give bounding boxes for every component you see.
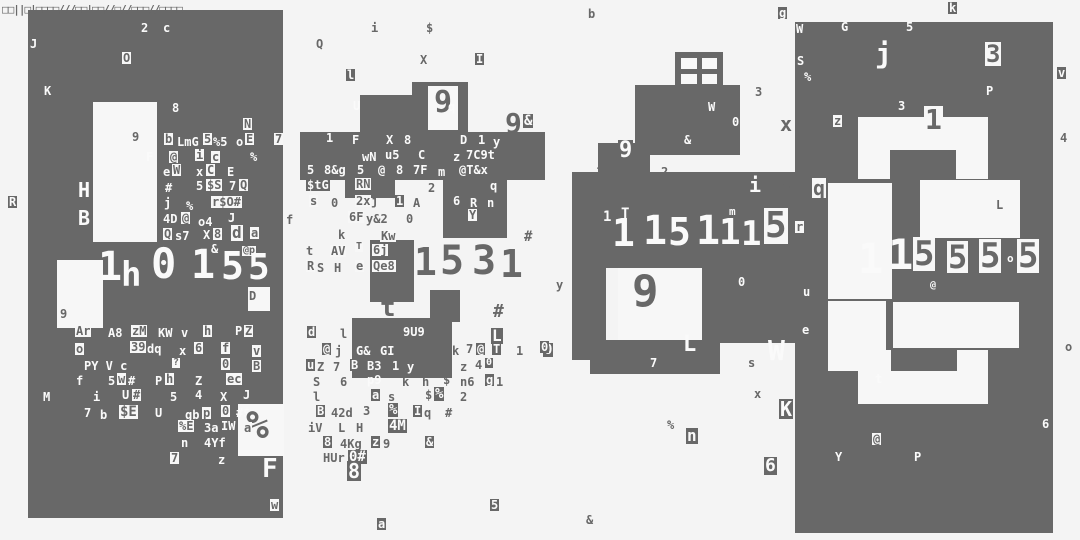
glyph: o — [236, 136, 243, 148]
glyph: w — [117, 373, 126, 385]
glyph: 5 — [203, 133, 212, 145]
glyph: 3 — [755, 86, 762, 98]
glyph: a — [250, 227, 259, 239]
glyph: o — [1065, 341, 1072, 353]
glyph: P — [155, 375, 162, 387]
glyph: W — [708, 101, 715, 113]
glyph: X — [386, 134, 393, 146]
glyph: W — [796, 23, 803, 35]
glyph: 0 — [731, 116, 740, 128]
glyph: k — [338, 229, 345, 241]
glyph: 0 — [151, 243, 176, 285]
glyph: $tG — [306, 179, 330, 191]
glyph: 1 — [98, 247, 122, 287]
glyph: 9 — [383, 438, 390, 450]
glyph: n — [487, 197, 494, 209]
glyph: 1 — [596, 166, 603, 178]
glyph: j — [164, 197, 171, 209]
glyph: @ — [377, 164, 386, 176]
glyph: r$O# — [211, 196, 242, 208]
glyph: wN — [362, 151, 376, 163]
glyph: @ — [930, 281, 936, 291]
glyph: y — [556, 279, 563, 291]
glyph: PY V c — [84, 360, 127, 372]
glyph: & — [425, 436, 434, 448]
glyph: AV — [330, 245, 346, 257]
glyph: 1 — [719, 215, 741, 251]
glyph: l — [346, 69, 355, 81]
glyph: 5 — [913, 237, 935, 271]
glyph: F — [146, 151, 153, 163]
glyph: b — [164, 133, 173, 145]
glyph: 4 — [308, 149, 315, 161]
glyph: E — [227, 166, 234, 178]
glyph: 2 — [428, 182, 435, 194]
gray-block — [890, 150, 956, 179]
glyph: 2 — [661, 166, 668, 178]
glyph: LmG — [177, 136, 199, 148]
glyph: x — [179, 345, 186, 357]
glyph: 3 — [363, 405, 370, 417]
glyph: q — [424, 407, 431, 419]
glyph: d — [231, 225, 243, 241]
glyph: T — [355, 242, 363, 252]
glyph: 2x — [355, 195, 371, 207]
glyph: 7F — [412, 164, 428, 176]
glyph: H — [356, 422, 363, 434]
glyph: 3 — [898, 100, 905, 112]
glyph: j — [875, 40, 892, 68]
glyph: v — [1057, 67, 1066, 79]
glyph: H — [334, 262, 341, 274]
glyph: 9 — [632, 270, 659, 314]
glyph: K — [44, 85, 51, 97]
glyph: 0 — [485, 358, 493, 368]
glyph: D — [460, 134, 467, 146]
glyph: e — [163, 166, 170, 178]
glyph: k — [948, 2, 957, 14]
glyph: 0 — [331, 197, 338, 209]
glyph: b — [588, 8, 595, 20]
glyph: 6j — [372, 244, 388, 256]
glyph: IW — [221, 420, 235, 432]
glyph: g — [778, 7, 787, 19]
glyph: R — [306, 260, 315, 272]
glyph: %E — [178, 420, 194, 432]
glyph: 9U9 — [403, 326, 425, 338]
glyph-noise-canvas: □□||□|□□□□///□□|□□//□//□□□//□□□□ 2cJOK8R… — [0, 0, 1080, 540]
glyph: 5 — [440, 241, 464, 281]
glyph: c — [163, 22, 170, 34]
glyph: C — [206, 164, 215, 176]
glyph: 6 — [194, 342, 203, 354]
glyph: 1 — [500, 245, 523, 283]
glyph: $ — [425, 389, 432, 401]
glyph: 8 — [213, 228, 222, 240]
glyph: P — [986, 85, 993, 97]
glyph: a — [371, 389, 380, 401]
glyph: 7 — [170, 452, 179, 464]
glyph: j — [371, 195, 378, 207]
glyph: 5 — [668, 213, 691, 251]
glyph: 6 — [452, 195, 461, 207]
glyph: # — [128, 375, 135, 387]
glyph: 1 — [496, 376, 503, 388]
glyph: 6 — [340, 376, 347, 388]
glyph: 0 — [540, 341, 549, 353]
glyph: C — [418, 149, 425, 161]
glyph: 5 — [306, 164, 315, 176]
glyph: % — [434, 387, 444, 401]
glyph: P — [914, 451, 921, 463]
glyph: I — [475, 53, 484, 65]
glyph: $ — [426, 22, 433, 34]
glyph: S — [797, 55, 804, 67]
glyph: 5 — [356, 164, 365, 176]
glyph: 7 — [650, 357, 657, 369]
glyph: L — [683, 334, 696, 356]
glyph: m — [729, 206, 736, 217]
glyph: 3a — [204, 422, 218, 434]
glyph: D — [249, 290, 256, 302]
glyph: 5 — [1017, 239, 1039, 273]
glyph: 3 — [472, 241, 496, 281]
glyph: Z — [244, 325, 253, 337]
glyph: 1 — [603, 210, 611, 224]
glyph: 1 — [191, 245, 215, 285]
glyph: @ — [181, 212, 190, 224]
glyph: s7 — [175, 230, 189, 242]
glyph: E — [767, 183, 773, 193]
glyph: U — [122, 389, 129, 401]
glyph: z — [460, 361, 467, 373]
glyph: d — [307, 326, 316, 338]
glyph: @ — [476, 343, 485, 355]
glyph: S — [313, 376, 320, 388]
glyph: Kw — [380, 230, 396, 242]
glyph: 9 — [618, 140, 633, 162]
glyph: %5 — [213, 136, 227, 148]
glyph: u — [306, 359, 315, 371]
glyph: 1 — [516, 345, 523, 357]
glyph: # — [524, 230, 532, 244]
glyph: n6 — [460, 376, 474, 388]
glyph: 5 — [248, 250, 270, 286]
glyph: 4Yf — [204, 437, 226, 449]
glyph: B — [78, 208, 90, 228]
glyph: z — [371, 436, 380, 448]
glyph: # — [493, 303, 504, 321]
glyph: 1 — [478, 134, 485, 146]
glyph: 8 — [323, 436, 332, 448]
glyph: c — [211, 151, 220, 163]
glyph: Qe8 — [372, 260, 396, 272]
glyph: a — [377, 518, 386, 530]
window-pane-icon — [675, 52, 723, 90]
glyph: $E — [119, 405, 138, 419]
gray-block — [430, 290, 460, 322]
glyph: x — [196, 166, 203, 178]
window-pane-top-left — [681, 58, 697, 69]
glyph: i — [195, 149, 204, 161]
glyph: 9 — [60, 308, 67, 320]
glyph: 9 — [505, 110, 522, 138]
glyph: 1 — [741, 217, 761, 251]
glyph: 8 — [172, 102, 179, 114]
glyph: @ — [872, 433, 881, 445]
glyph: 4M — [388, 419, 407, 433]
glyph: W — [768, 337, 785, 365]
glyph: h — [422, 376, 429, 388]
glyph: A — [413, 197, 420, 209]
glyph: g — [485, 374, 494, 386]
glyph: i — [748, 175, 762, 195]
glyph: v — [252, 345, 261, 357]
glyph: 7 — [333, 361, 340, 373]
glyph: 1 — [395, 195, 404, 207]
glyph: 5 — [979, 239, 1001, 273]
glyph: S — [317, 262, 324, 274]
glyph: @ — [322, 343, 331, 355]
glyph: y — [407, 361, 414, 373]
glyph: 1 — [392, 360, 399, 372]
glyph: $ — [443, 374, 450, 386]
glyph: t — [380, 295, 396, 321]
glyph: n — [686, 428, 698, 444]
glyph: I — [413, 405, 422, 417]
glyph: e — [355, 260, 364, 272]
glyph: ? — [172, 358, 180, 368]
glyph: E — [245, 133, 254, 145]
glyph: 4D — [163, 213, 177, 225]
glyph: f — [286, 214, 293, 226]
glyph: @ — [169, 151, 178, 163]
glyph: HUr — [323, 452, 345, 464]
glyph: h — [165, 373, 174, 385]
glyph: 5 — [947, 241, 968, 273]
glyph: J — [30, 38, 37, 50]
glyph: 1 — [414, 243, 437, 281]
glyph: x — [780, 114, 792, 134]
glyph: 8 — [395, 164, 404, 176]
glyph: Y — [835, 451, 842, 463]
glyph: v — [181, 327, 188, 339]
glyph: q — [448, 101, 455, 113]
glyph: p — [202, 407, 211, 419]
glyph: M — [43, 391, 50, 403]
glyph: % — [667, 419, 674, 431]
glyph: W — [780, 176, 793, 198]
glyph: B — [316, 405, 325, 417]
glyph: 5 — [170, 391, 177, 403]
glyph: N — [243, 118, 252, 130]
glyph: z — [453, 151, 460, 163]
glyph: 42d — [331, 407, 353, 419]
box-glyph-strip: □□||□|□□□□///□□|□□//□//□□□//□□□□ — [2, 3, 182, 16]
glyph: W — [172, 164, 181, 176]
glyph: 5 — [221, 247, 244, 285]
glyph: o4 — [198, 216, 212, 228]
glyph: 2 — [141, 22, 148, 34]
glyph: a — [243, 422, 252, 434]
glyph: H — [78, 180, 90, 200]
glyph: B — [350, 359, 359, 371]
glyph: 5 — [764, 208, 788, 244]
glyph: iV — [308, 422, 322, 434]
glyph: 3 — [985, 42, 1001, 66]
glyph: z — [218, 454, 225, 466]
glyph: Q — [239, 179, 248, 191]
glyph: B — [252, 360, 261, 372]
glyph: 4 — [195, 389, 202, 401]
glyph: O — [122, 52, 131, 64]
gray-block — [360, 95, 416, 135]
glyph: y — [493, 136, 500, 148]
glyph: 7 — [84, 407, 91, 419]
glyph: r — [795, 221, 804, 233]
glyph: 1 — [924, 106, 943, 134]
glyph: L — [996, 199, 1003, 211]
glyph: Z — [195, 375, 202, 387]
glyph: 1 — [696, 211, 720, 251]
glyph: U — [155, 407, 162, 419]
glyph: 5 — [108, 375, 115, 387]
glyph: x — [754, 388, 761, 400]
glyph: F — [352, 134, 359, 146]
glyph: f — [76, 375, 83, 387]
glyph: & — [586, 514, 593, 526]
glyph: o — [1007, 253, 1014, 264]
glyph: 5 — [490, 499, 499, 511]
glyph: T — [492, 343, 501, 355]
glyph: X — [420, 54, 427, 66]
glyph: & — [683, 134, 692, 146]
glyph: n — [181, 437, 188, 449]
glyph: j — [335, 345, 342, 357]
glyph: 53 — [309, 134, 323, 146]
glyph: # — [165, 182, 172, 194]
light-patch — [893, 302, 1019, 348]
glyph: l — [313, 391, 320, 403]
glyph: U — [353, 100, 360, 112]
gray-block — [700, 268, 800, 343]
glyph: 8&g — [323, 164, 347, 176]
glyph: KW — [158, 327, 172, 339]
glyph: F — [262, 456, 278, 482]
light-patch — [618, 268, 702, 340]
glyph: i — [93, 391, 100, 403]
glyph: K — [779, 399, 793, 419]
glyph: X — [203, 229, 210, 241]
glyph: u — [802, 286, 811, 298]
glyph: f — [221, 342, 230, 354]
glyph: 0 — [221, 405, 230, 417]
glyph: GI — [380, 345, 394, 357]
glyph: Q — [316, 38, 323, 50]
glyph: k — [452, 345, 459, 357]
glyph: 0 — [737, 276, 746, 288]
glyph: L — [338, 422, 345, 434]
glyph: 9 — [131, 131, 140, 143]
glyph: # — [132, 389, 141, 401]
glyph: m — [437, 166, 446, 178]
glyph: 4 — [475, 359, 482, 371]
glyph: 6F — [348, 211, 364, 223]
glyph: e — [802, 324, 809, 336]
glyph: A8 — [108, 327, 122, 339]
window-pane-top-right — [702, 58, 718, 69]
glyph: % — [804, 71, 811, 83]
glyph: h — [203, 325, 212, 337]
glyph: zM — [131, 325, 147, 337]
glyph: X — [220, 391, 227, 403]
glyph: p9 — [367, 374, 381, 386]
glyph: G& — [356, 345, 370, 357]
glyph: h — [121, 258, 141, 292]
glyph: 7C9t — [466, 149, 495, 161]
glyph: Y — [468, 209, 477, 221]
glyph: b — [100, 409, 107, 421]
glyph: 7 — [229, 180, 236, 192]
glyph: % — [250, 151, 257, 163]
glyph: l — [340, 328, 347, 340]
glyph: ec — [226, 373, 242, 385]
glyph: q — [490, 180, 497, 192]
glyph: 1 — [612, 214, 635, 252]
glyph: R — [8, 196, 17, 208]
glyph: 1 — [858, 238, 883, 280]
glyph: w — [270, 499, 279, 511]
window-pane-bottom-left — [681, 74, 697, 85]
glyph: t — [306, 245, 313, 257]
glyph: 1 — [325, 132, 334, 144]
glyph: B3 — [367, 360, 381, 372]
glyph: 5 — [196, 180, 203, 192]
glyph: 4 — [1060, 132, 1067, 144]
glyph: J — [243, 389, 250, 401]
glyph: 6 — [764, 457, 777, 475]
glyph: Z — [317, 361, 324, 373]
glyph: 0 — [221, 358, 230, 370]
glyph: dq — [147, 343, 161, 355]
window-pane-bottom-right — [702, 74, 718, 85]
glyph: 6 — [1042, 418, 1049, 430]
glyph: # — [445, 407, 452, 419]
glyph: 8 — [404, 134, 411, 146]
glyph: i — [371, 22, 378, 34]
glyph: RN — [355, 178, 371, 190]
light-patch — [93, 102, 157, 242]
glyph: $S — [206, 179, 222, 191]
glyph: P — [235, 325, 242, 337]
glyph: s — [309, 195, 318, 207]
glyph: @T&x — [458, 164, 489, 176]
glyph: u5 — [385, 149, 399, 161]
glyph: 1 — [888, 234, 913, 276]
glyph: q — [812, 178, 826, 198]
glyph: s — [748, 357, 755, 369]
glyph: % — [388, 403, 398, 417]
glyph: 7 — [274, 133, 283, 145]
glyph: o — [75, 343, 84, 355]
glyph: 1 — [643, 211, 667, 251]
glyph: k — [402, 376, 409, 388]
glyph: z — [833, 115, 842, 127]
glyph: 7 — [466, 343, 473, 355]
glyph: 0 — [406, 213, 413, 225]
glyph: 8 — [347, 461, 361, 481]
glyph: 39 — [130, 341, 146, 353]
